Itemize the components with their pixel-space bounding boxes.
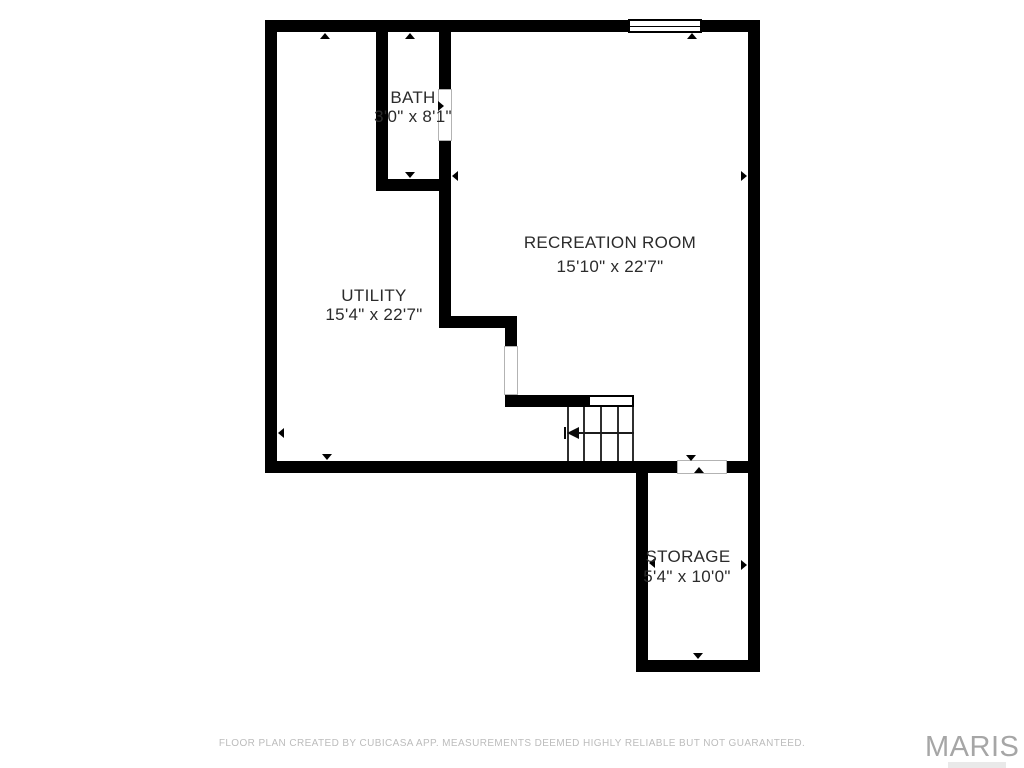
dimension-arrow-up-recreation [687,33,697,39]
stair-tread [617,407,619,461]
room-dims-utility: 15'4" x 22'7" [325,305,422,324]
room-label-recreation: RECREATION ROOM [524,233,696,252]
stair-tread [632,407,634,461]
wall-divider-step [439,316,517,328]
stairs-open-edge [588,395,634,407]
dimension-arrow-down-bath [405,172,415,178]
door-opening-divider [504,346,518,395]
dimension-arrow-up-storage-door [694,467,704,473]
dimension-arrow-left-recreation [452,171,458,181]
wall-right [748,20,760,672]
wall-bath-bottom [376,179,451,191]
window [628,19,702,33]
wall-left [265,20,277,473]
stair-arrow-tick [564,427,566,439]
dimension-arrow-down-storage-door [686,455,696,461]
room-label-bath: BATH [390,88,435,107]
stair-tread [600,407,602,461]
room-label-storage: STORAGE [646,547,731,566]
wall-bath-right-lower [439,141,451,326]
room-dims-storage: 5'4" x 10'0" [643,567,730,586]
dimension-arrow-down-storage [693,653,703,659]
wall-stairs-top [505,395,588,407]
dimension-arrow-right-storage [741,560,747,570]
dimension-arrow-down-utility [322,454,332,460]
stair-direction-arrow [567,427,579,439]
dimension-arrow-left-utility [278,428,284,438]
wall-bottom-right [727,461,760,473]
dimension-arrow-up-bath [405,33,415,39]
wall-bath-right-upper [439,32,451,89]
floor-plan: BATH 3'0" x 8'1" RECREATION ROOM 15'10" … [0,0,1024,768]
room-dims-bath: 3'0" x 8'1" [374,107,452,126]
wall-divider-stub [505,328,517,346]
stair-tread [583,407,585,461]
watermark-text: MARIS [925,731,1019,764]
stair-direction-line [577,432,634,434]
disclaimer-text: FLOOR PLAN CREATED BY CUBICASA APP. MEAS… [219,738,805,749]
dimension-arrow-up-utility [320,33,330,39]
window-mullion [630,26,700,27]
wall-bottom-main [265,461,677,473]
wall-storage-bottom [636,660,760,672]
room-label-utility: UTILITY [341,286,406,305]
dimension-arrow-right-recreation [741,171,747,181]
room-dims-recreation: 15'10" x 22'7" [557,257,664,276]
